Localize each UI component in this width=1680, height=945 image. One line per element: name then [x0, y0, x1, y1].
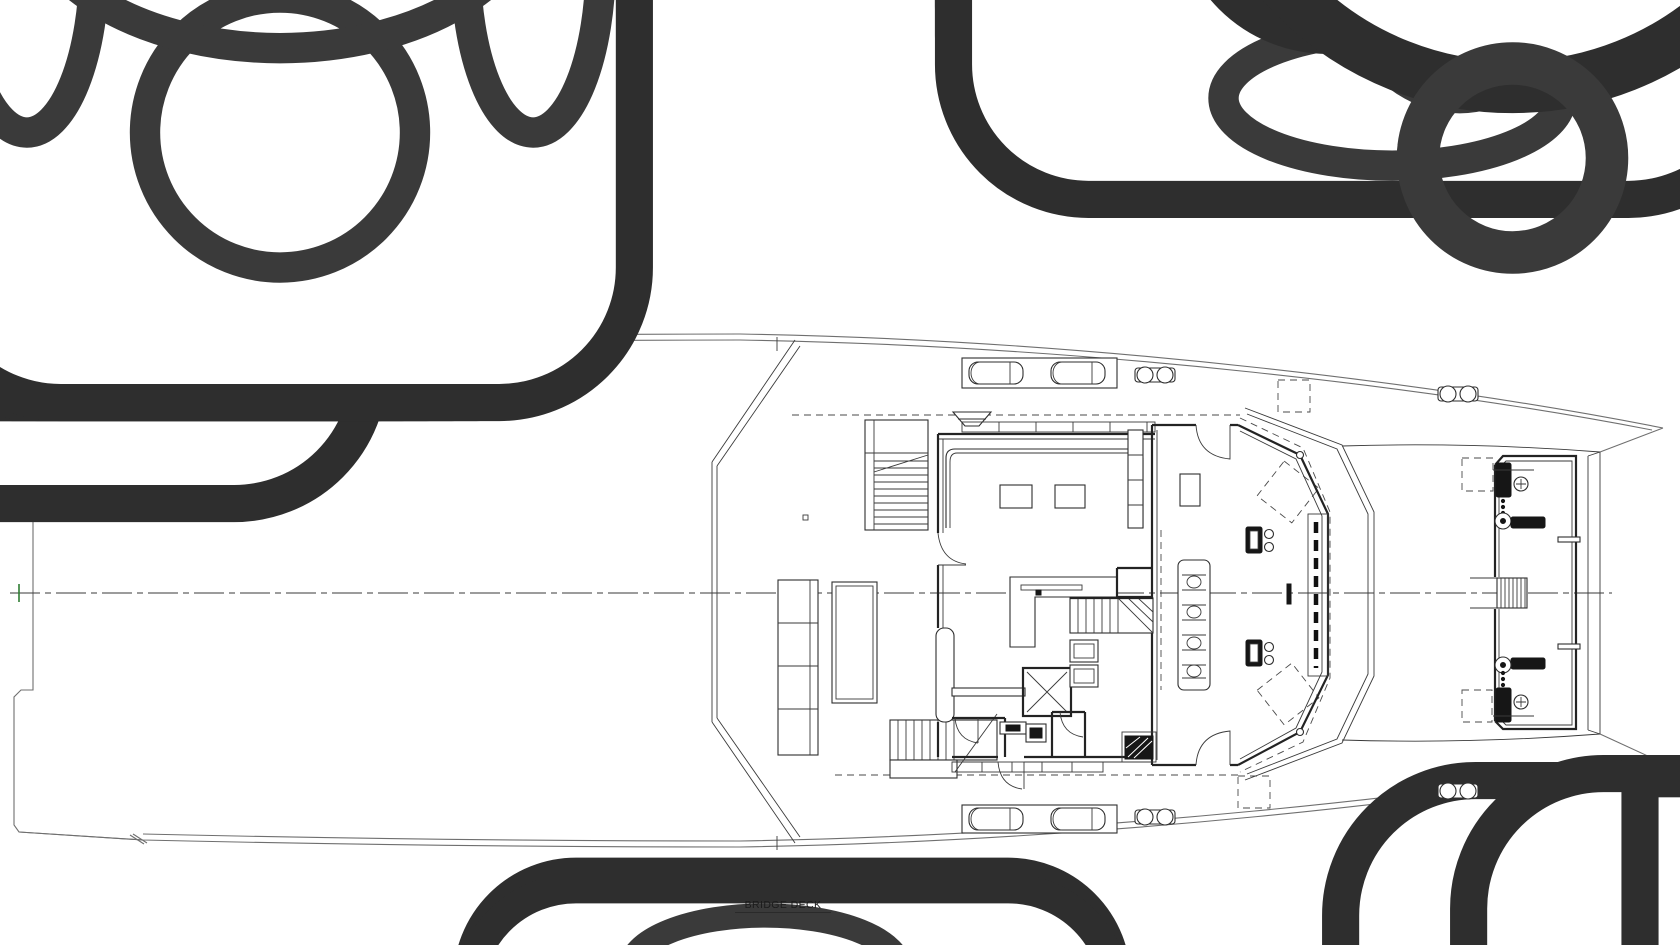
elevator [1023, 668, 1071, 716]
gym-equipment-starboard [1493, 657, 1545, 722]
hatch-aft-starboard [1238, 776, 1270, 808]
bulwark-diagonal-top [712, 340, 800, 466]
pilothouse-settee [1178, 560, 1210, 690]
gym-wall-stub [1558, 644, 1580, 649]
sunbed [1051, 362, 1105, 384]
mullion-node [1297, 729, 1304, 736]
drawing-sheet: BRIDGE DECK [0, 0, 1680, 945]
hatched-locker [1122, 732, 1156, 762]
helm-station-port [1246, 527, 1274, 553]
deck-vent [953, 412, 991, 426]
gym-equipment-port [1493, 463, 1545, 529]
mullion-node [1297, 452, 1304, 459]
deck-winch [1135, 367, 1175, 383]
gym-wall-stub [1558, 537, 1580, 542]
vanity-counter [952, 688, 1025, 696]
bridge-deck-plan [0, 0, 1680, 945]
hatch-aft-port [1278, 380, 1310, 412]
bulwark-cap-bottom [1342, 734, 1600, 741]
gym-stair [1470, 578, 1527, 608]
steering-pedestal [1287, 584, 1291, 604]
toilet [1640, 779, 1680, 945]
hatch-fore-starboard [1462, 690, 1492, 722]
coffee-table [1055, 485, 1085, 508]
overhead-hatch-bottom [1257, 663, 1319, 725]
side-cabinet [1128, 430, 1143, 528]
bulwark-cap-top [1342, 445, 1600, 452]
deck-marker [803, 515, 808, 520]
bulwark-aft-edge [712, 462, 717, 722]
sunbed [1051, 808, 1105, 830]
dining-table [832, 582, 877, 703]
helm-station-starboard [1246, 640, 1274, 666]
foredeck-winch [1438, 783, 1478, 799]
sunbed [969, 362, 1023, 384]
coffee-table [1000, 485, 1032, 508]
salon-door [938, 533, 966, 565]
deck-title: BRIDGE DECK [735, 899, 831, 913]
wheelhouse-table [1180, 474, 1200, 506]
stair-aft-port [865, 420, 928, 530]
stair-center [1070, 598, 1153, 633]
wheelhouse-door-port [1196, 425, 1230, 459]
pantry-cabinets [1070, 640, 1098, 687]
hatch-fore-port [1462, 458, 1493, 491]
deck-winch [1135, 809, 1175, 825]
sofa-seat [0, 0, 634, 403]
sunbed [969, 808, 1023, 830]
aft-deck-door [998, 762, 1024, 789]
wheelhouse-door-starboard [1196, 731, 1230, 765]
wheelhouse-chair [468, 889, 1116, 945]
salon-l-sofa [936, 628, 954, 722]
foredeck-winch [1438, 386, 1478, 402]
sideboard [778, 580, 818, 755]
aft-stair-down [890, 714, 997, 778]
bow-top-return [1600, 428, 1663, 452]
